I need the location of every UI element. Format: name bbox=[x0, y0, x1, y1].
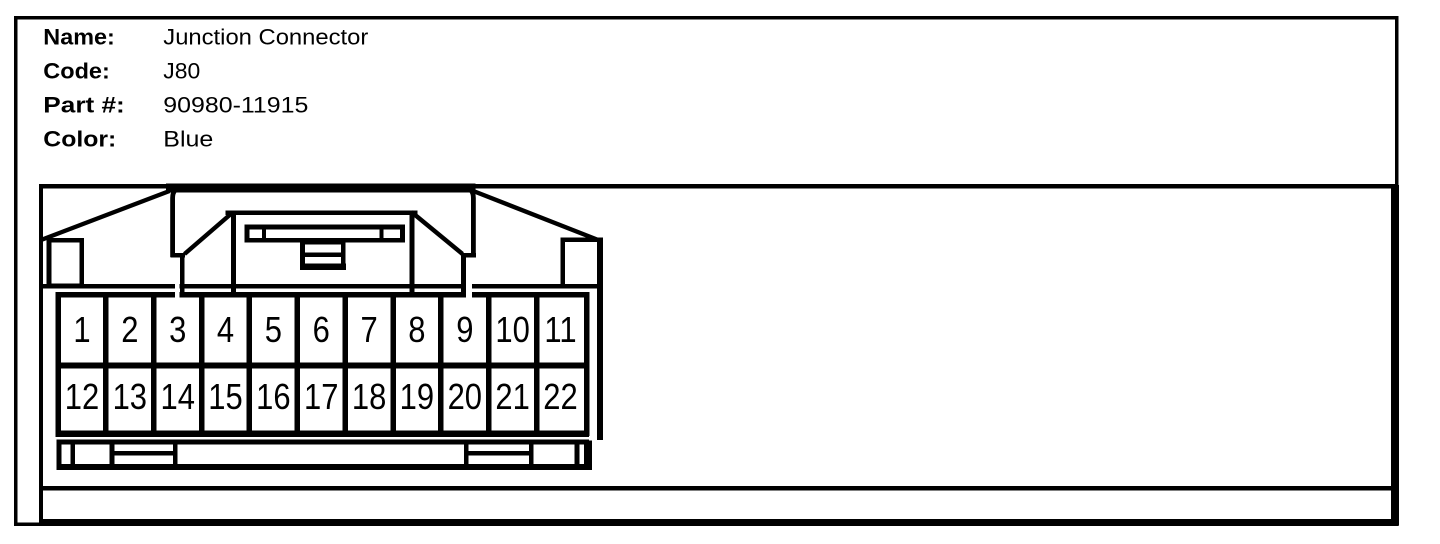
svg-text:10: 10 bbox=[495, 311, 529, 351]
svg-text:21: 21 bbox=[495, 378, 529, 418]
svg-text:90980-11915: 90980-11915 bbox=[163, 93, 308, 118]
svg-text:Part #:: Part #: bbox=[43, 93, 125, 118]
svg-text:Junction Connector: Junction Connector bbox=[163, 25, 368, 50]
svg-text:11: 11 bbox=[544, 311, 576, 351]
svg-text:Blue: Blue bbox=[163, 127, 213, 152]
svg-text:2: 2 bbox=[121, 311, 138, 351]
svg-text:J80: J80 bbox=[163, 59, 200, 84]
svg-text:Name:: Name: bbox=[43, 25, 115, 50]
svg-text:20: 20 bbox=[448, 378, 482, 418]
svg-text:12: 12 bbox=[65, 378, 99, 418]
svg-text:1: 1 bbox=[73, 311, 90, 351]
svg-text:17: 17 bbox=[304, 378, 338, 418]
svg-text:Code:: Code: bbox=[43, 59, 110, 84]
svg-text:19: 19 bbox=[400, 378, 434, 418]
svg-text:6: 6 bbox=[313, 311, 330, 351]
svg-text:13: 13 bbox=[113, 378, 147, 418]
svg-text:18: 18 bbox=[352, 378, 386, 418]
svg-text:9: 9 bbox=[456, 311, 473, 351]
svg-text:14: 14 bbox=[160, 378, 194, 418]
svg-text:Color:: Color: bbox=[43, 127, 116, 152]
svg-text:22: 22 bbox=[543, 378, 577, 418]
svg-text:4: 4 bbox=[217, 311, 234, 351]
svg-text:8: 8 bbox=[408, 311, 425, 351]
svg-text:7: 7 bbox=[360, 311, 377, 351]
svg-text:15: 15 bbox=[208, 378, 242, 418]
svg-text:5: 5 bbox=[265, 311, 282, 351]
svg-text:16: 16 bbox=[256, 378, 290, 418]
svg-text:3: 3 bbox=[169, 311, 186, 351]
